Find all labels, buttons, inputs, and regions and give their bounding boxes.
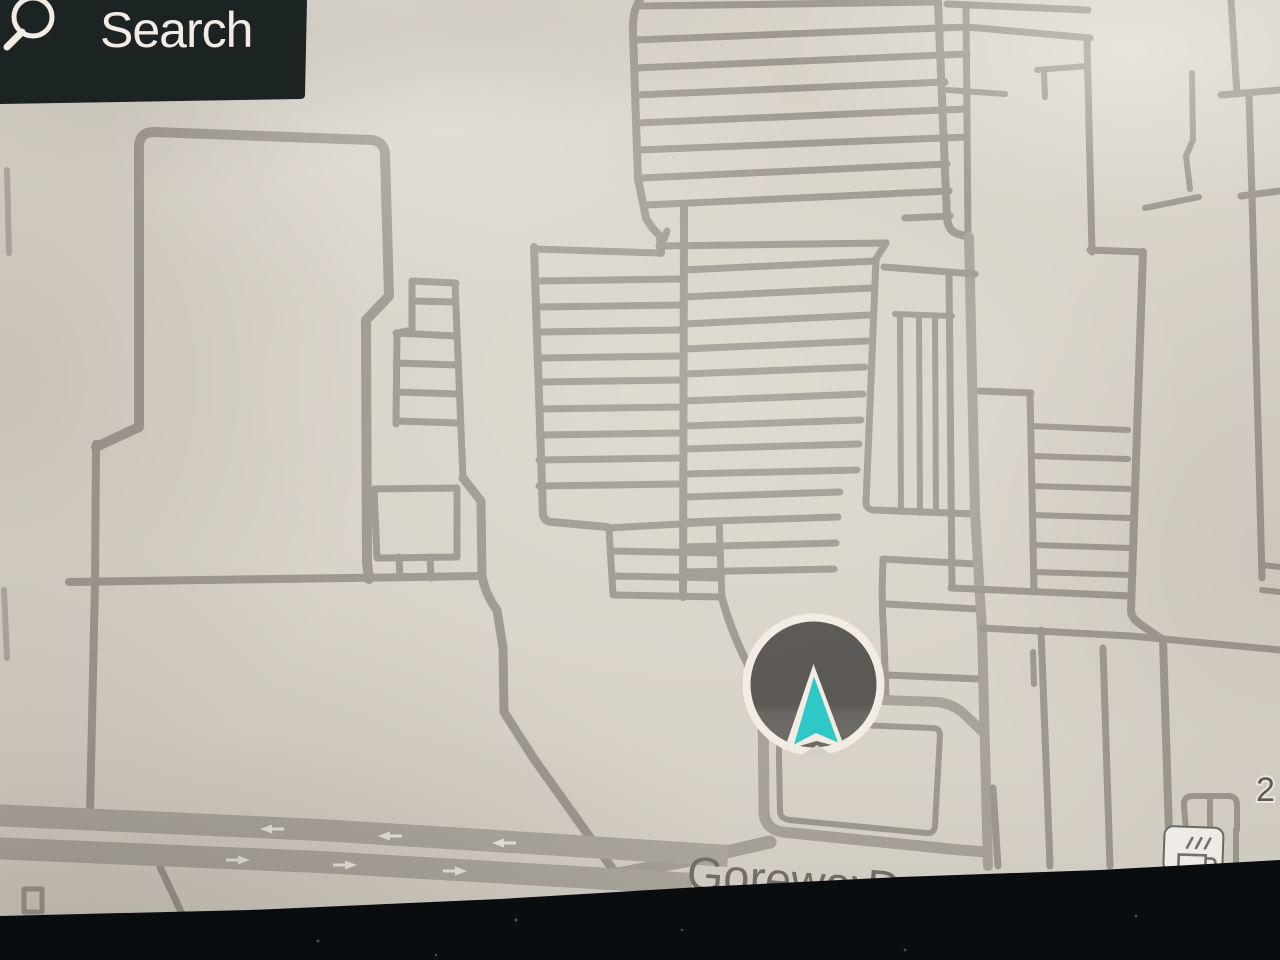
svg-text:Search: Search bbox=[100, 2, 252, 58]
